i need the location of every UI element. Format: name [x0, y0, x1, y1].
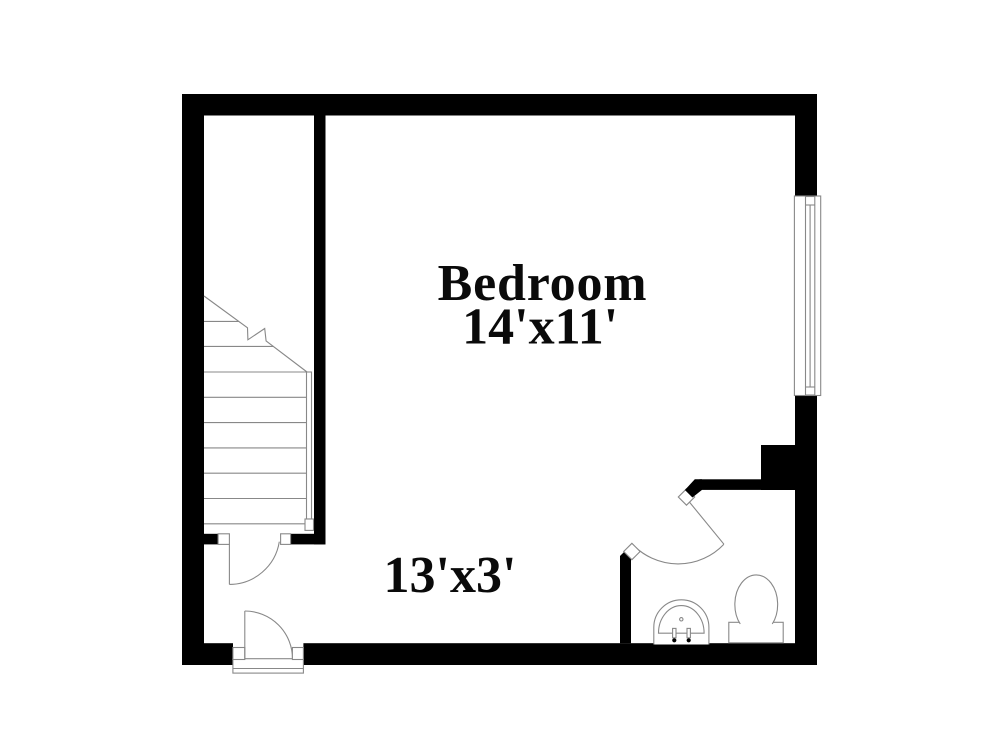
svg-text:13'x3': 13'x3': [384, 547, 517, 604]
svg-text:14'x11': 14'x11': [462, 299, 618, 356]
